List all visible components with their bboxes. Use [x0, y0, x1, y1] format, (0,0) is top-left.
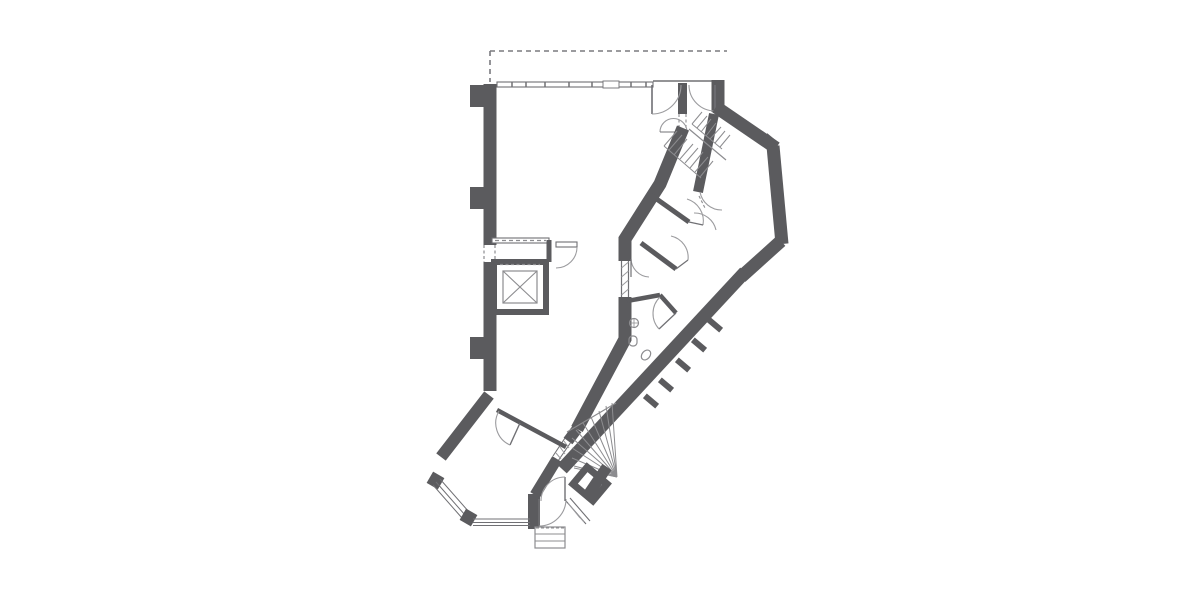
wall-vestibule-left-diag: [535, 459, 557, 495]
wall-door-post: [678, 83, 687, 114]
wall-wing-right: [773, 146, 782, 244]
wall-pilaster: [470, 337, 484, 359]
wall-band-outer: [562, 272, 745, 469]
door-swing-arc: [539, 499, 566, 526]
wall-wc: [660, 295, 676, 313]
wall-bay-partition: [497, 410, 566, 447]
door-leaf: [556, 242, 577, 247]
door-swing-arc: [689, 85, 715, 111]
door-swing-arc: [556, 247, 577, 268]
window-frame: [433, 479, 469, 518]
window-wall-top: [497, 82, 653, 87]
wall-wing-bottom: [741, 241, 781, 277]
entry-steps: [535, 527, 565, 548]
window-frame: [473, 519, 530, 526]
door-leaf: [659, 313, 676, 329]
floor-plan-canvas: [0, 0, 1200, 600]
wall-pier: [675, 358, 691, 373]
door-leaf: [689, 222, 703, 225]
door-swing-arc: [694, 213, 716, 230]
wall-partition: [651, 195, 689, 222]
wall-pilaster: [470, 187, 484, 209]
wall-pier: [643, 394, 659, 409]
wall-bay-upper: [441, 395, 489, 457]
window-hatch: [622, 262, 629, 295]
wall-wc: [627, 295, 660, 301]
door-swing-arc: [671, 236, 688, 260]
wall-partition: [641, 243, 676, 269]
wc-fixture: [639, 348, 652, 362]
floor-plan-svg: [0, 0, 1200, 600]
wall-pier: [658, 378, 674, 393]
window-hatch: [568, 503, 584, 522]
door-swing-arc: [700, 192, 722, 210]
window-frame: [566, 498, 590, 524]
elevator-cross: [503, 271, 537, 303]
wall-pilaster: [470, 85, 484, 107]
door-swing-arc: [652, 85, 681, 114]
wall-pier: [707, 318, 723, 333]
door-leaf: [510, 423, 520, 445]
wall-pier: [691, 338, 707, 353]
window-break: [603, 81, 619, 88]
door-swing-arc: [653, 297, 660, 329]
door-swing-arc: [631, 259, 649, 277]
door-leaf: [676, 260, 688, 269]
